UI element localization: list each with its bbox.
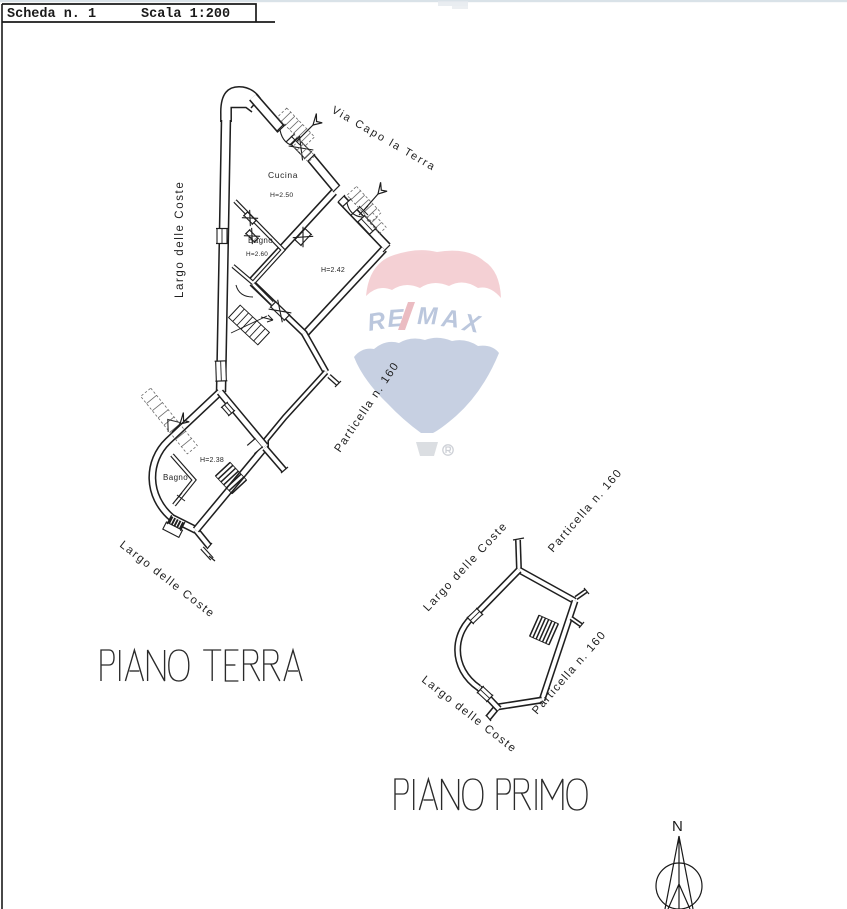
- svg-text:Scheda n. 1: Scheda n. 1: [7, 7, 96, 22]
- svg-text:M: M: [417, 303, 438, 330]
- svg-text:Scala 1:200: Scala 1:200: [141, 7, 230, 22]
- svg-text:H=2.42: H=2.42: [321, 267, 345, 274]
- svg-text:H=2.60: H=2.60: [246, 251, 268, 258]
- svg-text:Cucina: Cucina: [268, 170, 298, 180]
- svg-text:N: N: [672, 818, 683, 835]
- svg-text:Largo delle Coste: Largo delle Coste: [174, 181, 186, 298]
- svg-text:Bagno: Bagno: [163, 473, 188, 482]
- svg-text:A: A: [439, 305, 460, 334]
- svg-text:H=2.38: H=2.38: [200, 457, 224, 464]
- svg-text:Bagno: Bagno: [248, 236, 273, 245]
- svg-text:H=2.50: H=2.50: [270, 192, 293, 199]
